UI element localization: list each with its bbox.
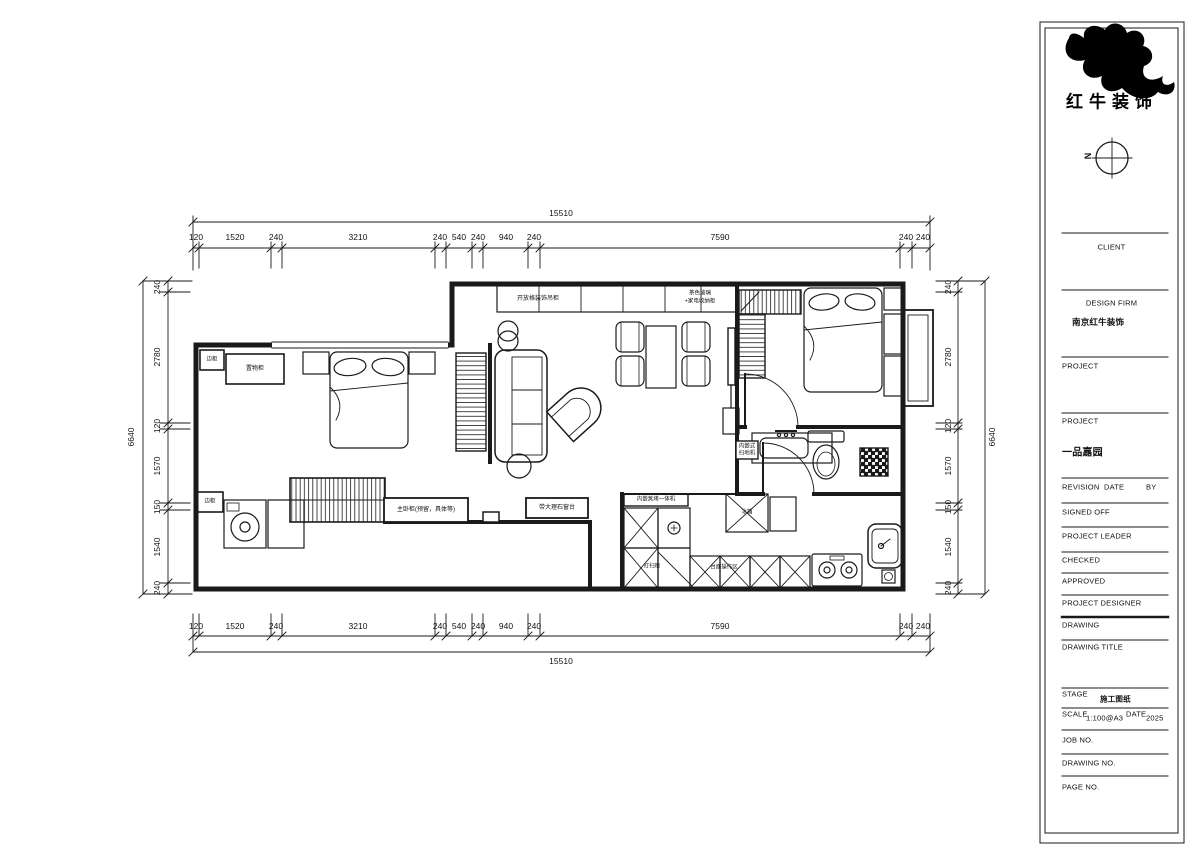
dim-label: 1540 <box>944 538 953 557</box>
dim-label: 240 <box>944 280 953 294</box>
floor-drain <box>882 570 895 583</box>
stage-label: STAGE <box>1062 690 1088 699</box>
project-label: PROJECT <box>1062 362 1098 371</box>
wardrobe-hatch <box>290 478 385 522</box>
dim-label: 1570 <box>944 457 953 476</box>
dim-label: 7590 <box>711 622 730 631</box>
dim-label: 940 <box>499 622 513 631</box>
dim-label: 7590 <box>711 233 730 242</box>
dim-label: 3210 <box>349 233 368 242</box>
pillow <box>808 292 840 312</box>
dim-label: 3210 <box>349 622 368 631</box>
dim-label: 940 <box>499 233 513 242</box>
toilet <box>808 431 844 479</box>
dining-set <box>616 322 710 388</box>
plan-note-storage-cabinet: 置物柜 <box>246 366 264 372</box>
living-dining-furniture <box>495 286 739 478</box>
bedroom2-furniture <box>739 288 903 396</box>
dim-label: 240 <box>433 233 447 242</box>
job-no-label: JOB NO. <box>1062 736 1093 745</box>
tv-slat-unit <box>456 353 486 451</box>
date-field-label: DATE <box>1126 710 1146 719</box>
sofa <box>495 331 547 478</box>
dim-label: 1570 <box>153 457 162 476</box>
signed-off-label: SIGNED OFF <box>1062 508 1110 517</box>
plan-note-base-cabinet1: 打扫柜 <box>644 564 661 570</box>
bathroom-fixtures <box>736 431 888 479</box>
bay-window <box>903 310 933 406</box>
design-firm-value: 南京红牛装饰 <box>1072 316 1124 328</box>
drawing-sheet: 15510 120 1520 240 3210 240 540 240 940 … <box>0 0 1200 848</box>
dining-table <box>646 326 676 388</box>
plan-note-window-sill: 带大理石窗台 <box>539 505 575 511</box>
dim-label: 2780 <box>153 348 162 367</box>
drawing-label: DRAWING <box>1062 621 1099 630</box>
dim-label: 1520 <box>226 622 245 631</box>
north-label: N <box>1083 153 1093 160</box>
project-leader-label: PROJECT LEADER <box>1062 532 1132 541</box>
dim-label: 240 <box>944 581 953 595</box>
scale-value: 1:100@A3 <box>1086 714 1123 723</box>
exterior-walls <box>196 284 903 589</box>
plan-note-tall-unit: 内嵌蒸烤一体机 <box>637 497 676 503</box>
plan-note-robot-vacuum: 扫地机 <box>739 451 756 457</box>
dim-label: 240 <box>471 622 485 631</box>
plan-note-base-cabinet2: 台面操作区 <box>710 565 738 571</box>
project-value: 一品嘉园 <box>1062 444 1103 459</box>
nightstand <box>409 352 435 374</box>
dim-label: 240 <box>899 233 913 242</box>
nightstand <box>884 288 903 310</box>
dim-label: 240 <box>269 233 283 242</box>
plan-note-upper-cabinet: 开放格装饰吊柜 <box>517 296 559 302</box>
shower-floor <box>860 448 888 476</box>
dim-label: 540 <box>452 622 466 631</box>
page-no-label: PAGE NO. <box>1062 783 1099 792</box>
dim-label: 240 <box>471 233 485 242</box>
dim-label: 150 <box>944 500 953 514</box>
dim-label: 240 <box>527 233 541 242</box>
by-label: BY <box>1146 483 1156 492</box>
window-seat <box>884 314 903 354</box>
base-cabinets <box>690 556 810 588</box>
gas-stove <box>812 554 862 586</box>
dim-label: 1520 <box>226 233 245 242</box>
dim-label: 120 <box>944 419 953 433</box>
floorplan-linework <box>0 0 1200 848</box>
pillow <box>371 357 405 378</box>
dim-label: 2780 <box>944 348 953 367</box>
dim-total-top: 15510 <box>549 209 573 218</box>
stage-value: 施工图纸 <box>1100 694 1131 705</box>
dim-total-bottom: 15510 <box>549 657 573 666</box>
dim-label: 240 <box>916 622 930 631</box>
dim-label: 240 <box>916 233 930 242</box>
plan-note-side-cabinet: 边柜 <box>204 499 215 505</box>
nightstand <box>303 352 329 374</box>
client-label: CLIENT <box>1046 243 1177 252</box>
dim-label: 120 <box>189 622 203 631</box>
dining-chair <box>616 356 644 386</box>
dim-total-right: 6640 <box>988 428 997 447</box>
project-label: PROJECT <box>1062 417 1098 426</box>
dim-total-left: 6640 <box>127 428 136 447</box>
plan-note-side-cabinet: 边柜 <box>206 357 217 363</box>
dim-bottom <box>189 614 934 656</box>
dim-top <box>189 216 934 270</box>
window-band <box>272 339 448 351</box>
dim-left <box>139 277 192 598</box>
armchair <box>547 380 609 442</box>
plan-note-upper-cabinet2: 茶色玻璃 <box>689 291 711 297</box>
double-bed <box>804 288 882 392</box>
master-bedroom-furniture <box>197 350 588 548</box>
dining-chair <box>616 322 644 352</box>
revision-label: REVISION <box>1062 483 1099 492</box>
dim-label: 1540 <box>153 538 162 557</box>
dim-label: 240 <box>527 622 541 631</box>
dim-label: 240 <box>269 622 283 631</box>
dining-chair <box>682 356 710 386</box>
dining-chair <box>682 322 710 352</box>
dim-label: 120 <box>189 233 203 242</box>
plan-note-wardrobe: 主卧柜(预留，具体等) <box>397 507 455 513</box>
cabinet <box>770 497 796 531</box>
plan-note-upper-cabinet2: +家电收纳柜 <box>685 299 716 305</box>
plan-note-robot-vacuum: 内嵌式 <box>739 444 756 450</box>
kitchen-sink <box>868 524 902 568</box>
approved-label: APPROVED <box>1062 577 1105 586</box>
dim-label: 240 <box>899 622 913 631</box>
pillow <box>844 292 876 312</box>
dim-label: 540 <box>452 233 466 242</box>
dim-label: 120 <box>153 419 162 433</box>
kitchen-fixtures <box>624 494 902 588</box>
date-value: 2025 <box>1146 714 1164 723</box>
double-bed <box>330 352 408 448</box>
washing-machine <box>224 500 266 548</box>
closet-hatch <box>739 290 801 378</box>
dim-label: 240 <box>433 622 447 631</box>
scale-label: SCALE <box>1062 710 1088 719</box>
tall-cabinets <box>624 494 692 588</box>
window-seat <box>884 356 903 396</box>
dim-label: 240 <box>153 581 162 595</box>
drawing-title-label: DRAWING TITLE <box>1062 643 1123 652</box>
design-firm-label: DESIGN FIRM <box>1046 299 1177 308</box>
pillow <box>333 357 367 378</box>
dim-label: 150 <box>153 500 162 514</box>
north-compass <box>1092 138 1132 178</box>
date-label: DATE <box>1104 483 1124 492</box>
drawing-no-label: DRAWING NO. <box>1062 759 1116 768</box>
plan-note-fridge: 冰箱 <box>741 510 752 516</box>
checked-label: CHECKED <box>1062 556 1100 565</box>
dim-label: 240 <box>153 280 162 294</box>
project-designer-label: PROJECT DESIGNER <box>1062 599 1141 608</box>
company-name: 红牛装饰 <box>1066 88 1158 113</box>
side-table <box>507 454 531 478</box>
